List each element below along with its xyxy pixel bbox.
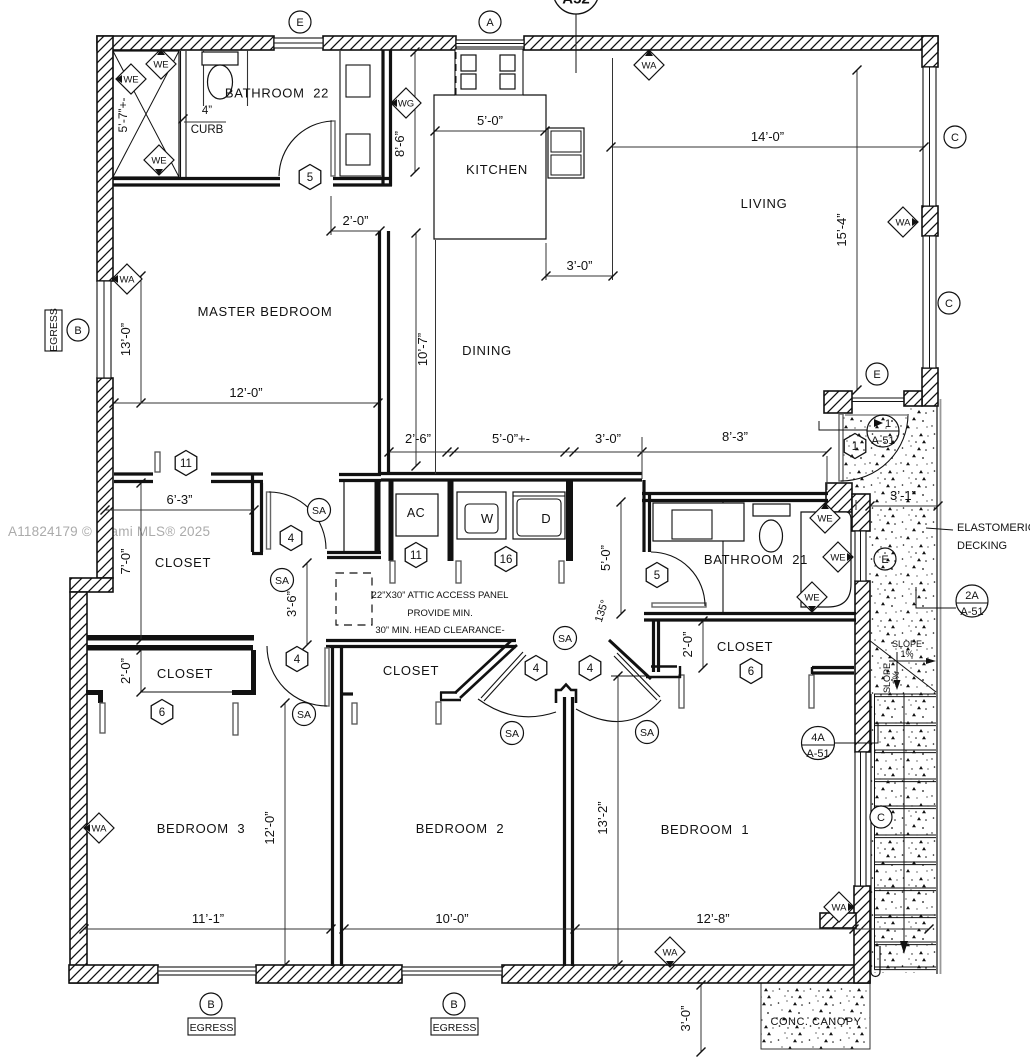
svg-text:12’-0”: 12’-0” <box>229 385 262 400</box>
svg-text:4: 4 <box>533 663 540 675</box>
svg-text:W: W <box>481 511 494 526</box>
svg-text:EGRESS: EGRESS <box>190 1022 234 1034</box>
svg-text:E: E <box>296 17 303 29</box>
svg-text:3’-0”: 3’-0” <box>566 258 592 273</box>
svg-text:DECKING: DECKING <box>957 540 1007 552</box>
svg-text:16: 16 <box>500 554 513 566</box>
svg-text:CLOSET: CLOSET <box>717 639 773 654</box>
svg-text:4: 4 <box>288 533 295 545</box>
svg-text:CLOSET: CLOSET <box>383 663 439 678</box>
svg-text:E: E <box>881 554 888 566</box>
svg-text:CURB: CURB <box>191 124 224 136</box>
svg-text:8’-6”: 8’-6” <box>392 131 407 157</box>
svg-text:4A: 4A <box>811 732 825 744</box>
svg-text:SA: SA <box>640 727 654 739</box>
svg-text:C: C <box>945 298 953 310</box>
svg-text:WA: WA <box>663 948 679 959</box>
svg-text:SA: SA <box>505 728 519 740</box>
svg-text:5: 5 <box>307 172 313 184</box>
svg-text:MASTER BEDROOM: MASTER BEDROOM <box>198 304 333 319</box>
svg-text:6’-3”: 6’-3” <box>166 492 192 507</box>
svg-text:WE: WE <box>153 60 168 71</box>
svg-text:C: C <box>951 132 959 144</box>
svg-text:BEDROOM 3: BEDROOM 3 <box>157 821 246 836</box>
svg-text:A: A <box>486 17 494 29</box>
svg-text:1: 1 <box>885 418 891 430</box>
svg-text:WE: WE <box>804 593 819 604</box>
svg-text:2’-0”: 2’-0” <box>680 631 695 657</box>
svg-text:A52: A52 <box>562 0 590 8</box>
svg-text:13’-2”: 13’-2” <box>595 801 610 834</box>
svg-text:A-51: A-51 <box>806 748 829 760</box>
svg-text:A-51: A-51 <box>871 435 894 447</box>
svg-text:5: 5 <box>654 570 660 582</box>
svg-text:SA: SA <box>558 633 572 645</box>
svg-text:C: C <box>877 812 885 824</box>
svg-text:10’-0”: 10’-0” <box>435 911 468 926</box>
svg-text:6: 6 <box>748 666 754 678</box>
svg-text:8’-3”: 8’-3” <box>722 429 748 444</box>
svg-text:CLOSET: CLOSET <box>157 666 213 681</box>
svg-text:E: E <box>873 369 880 381</box>
svg-text:WE: WE <box>817 514 832 525</box>
svg-text:SA: SA <box>297 709 311 721</box>
svg-text:4: 4 <box>587 663 594 675</box>
svg-text:3’-6”: 3’-6” <box>284 591 299 617</box>
svg-text:15’-4”: 15’-4” <box>834 213 849 246</box>
svg-text:5’-0”: 5’-0” <box>598 545 613 571</box>
svg-text:WE: WE <box>151 156 166 167</box>
svg-text:WE: WE <box>830 553 845 564</box>
svg-text:4”: 4” <box>202 105 212 117</box>
svg-text:EGRESS: EGRESS <box>48 308 60 352</box>
svg-text:B: B <box>207 999 214 1011</box>
svg-text:EGRESS: EGRESS <box>433 1022 477 1034</box>
svg-text:WE: WE <box>123 75 138 86</box>
svg-text:12’-0”: 12’-0” <box>262 811 277 844</box>
svg-text:BEDROOM 1: BEDROOM 1 <box>661 822 750 837</box>
svg-text:3’-0”: 3’-0” <box>595 431 621 446</box>
svg-text:PROVIDE MIN.: PROVIDE MIN. <box>407 608 472 619</box>
svg-text:14’-0”: 14’-0” <box>751 129 784 144</box>
svg-text:BEDROOM 2: BEDROOM 2 <box>416 821 505 836</box>
svg-text:ELASTOMERIC: ELASTOMERIC <box>957 522 1030 534</box>
svg-text:1: 1 <box>852 441 858 453</box>
svg-text:10’-7”: 10’-7” <box>415 333 430 366</box>
svg-text:WA: WA <box>832 903 848 914</box>
svg-text:LIVING: LIVING <box>741 196 788 211</box>
svg-text:2A: 2A <box>965 590 979 602</box>
svg-text:WA: WA <box>120 275 136 286</box>
svg-text:6: 6 <box>159 707 165 719</box>
svg-text:11: 11 <box>180 458 192 470</box>
svg-text:WA: WA <box>92 824 108 835</box>
svg-text:30” MIN. HEAD CLEARANCE-: 30” MIN. HEAD CLEARANCE- <box>375 625 504 636</box>
svg-text:SA: SA <box>275 575 289 587</box>
svg-text:13’-0”: 13’-0” <box>118 323 133 356</box>
svg-text:CONC. CANOPY: CONC. CANOPY <box>771 1016 862 1028</box>
svg-text:SA: SA <box>312 505 326 517</box>
svg-text:5’-0”+-: 5’-0”+- <box>492 431 530 446</box>
svg-text:5’-0”: 5’-0” <box>477 113 503 128</box>
svg-text:CLOSET: CLOSET <box>155 555 211 570</box>
svg-text:WG: WG <box>398 99 414 110</box>
svg-text:3’-0”: 3’-0” <box>678 1005 693 1031</box>
svg-text:22”X30” ATTIC ACCESS PANEL: 22”X30” ATTIC ACCESS PANEL <box>372 590 509 601</box>
svg-text:11’-1”: 11’-1” <box>192 911 224 926</box>
svg-text:KITCHEN: KITCHEN <box>466 162 528 177</box>
svg-text:7’-0”: 7’-0” <box>118 548 133 574</box>
svg-text:WA: WA <box>642 61 658 72</box>
svg-text:5’-7”+-: 5’-7”+- <box>116 97 130 132</box>
svg-text:BATHROOM 21: BATHROOM 21 <box>704 552 808 567</box>
svg-text:SLOPE: SLOPE <box>892 639 922 649</box>
svg-text:AC: AC <box>407 506 425 520</box>
svg-text:D: D <box>541 511 550 526</box>
svg-text:2’-0”: 2’-0” <box>118 658 133 684</box>
svg-text:11: 11 <box>410 550 422 562</box>
svg-text:B: B <box>74 325 81 337</box>
svg-text:DINING: DINING <box>462 343 512 358</box>
svg-text:2’-6”: 2’-6” <box>405 431 431 446</box>
svg-text:WA: WA <box>896 218 912 229</box>
svg-text:BATHROOM 22: BATHROOM 22 <box>225 86 329 101</box>
svg-text:4: 4 <box>294 654 301 666</box>
svg-text:1%: 1% <box>900 649 913 659</box>
svg-text:3’-1”: 3’-1” <box>890 488 916 503</box>
svg-text:12’-8”: 12’-8” <box>696 911 729 926</box>
svg-text:B: B <box>450 999 457 1011</box>
svg-text:A-51: A-51 <box>960 606 983 618</box>
svg-text:2’-0”: 2’-0” <box>342 213 368 228</box>
